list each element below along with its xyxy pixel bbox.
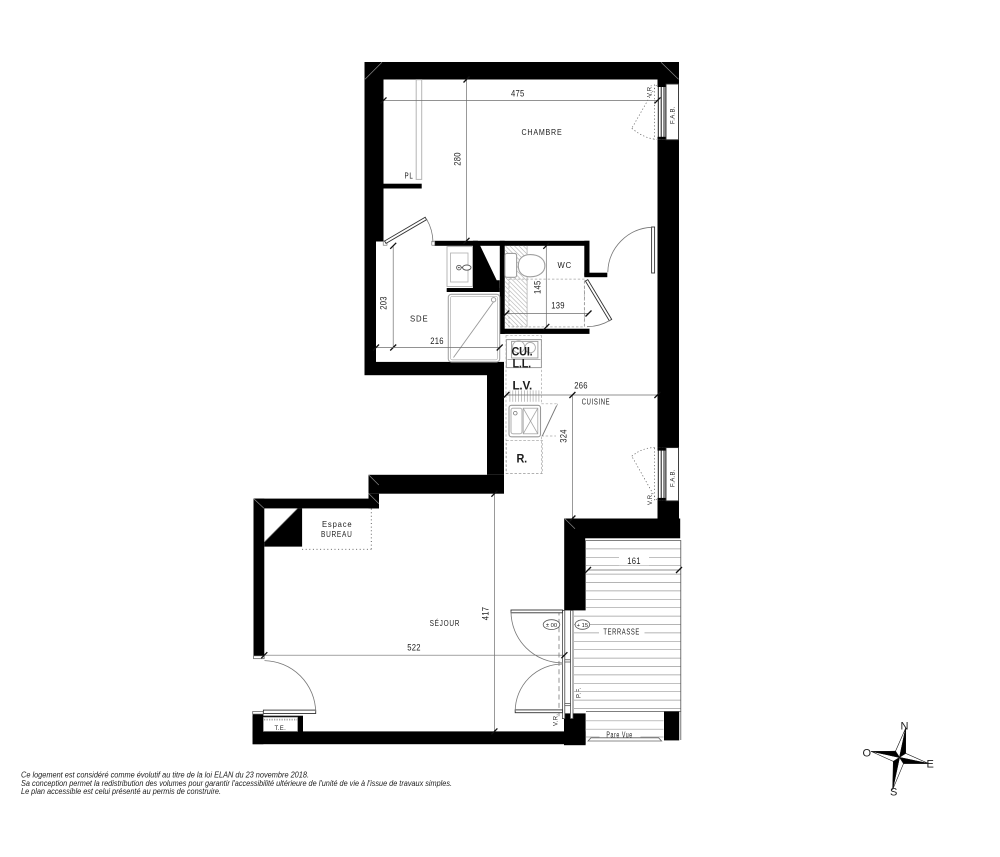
svg-text:WC: WC <box>558 261 573 270</box>
svg-text:F.A.B.: F.A.B. <box>671 469 677 487</box>
svg-text:280: 280 <box>453 152 463 166</box>
svg-text:CUI.: CUI. <box>512 347 533 359</box>
svg-text:E: E <box>927 759 934 771</box>
svg-text:V.R.: V.R. <box>648 493 654 505</box>
svg-text:P.F.: P.F. <box>577 687 583 698</box>
svg-text:PL: PL <box>405 172 414 181</box>
svg-text:417: 417 <box>480 607 490 621</box>
svg-text:S: S <box>890 787 897 799</box>
svg-text:L.L.: L.L. <box>513 358 532 370</box>
svg-text:216: 216 <box>430 336 444 346</box>
svg-text:Le plan accessible est celui p: Le plan accessible est celui présenté au… <box>21 787 221 796</box>
svg-text:145: 145 <box>533 281 543 295</box>
svg-text:522: 522 <box>407 643 421 653</box>
svg-text:SDE: SDE <box>410 315 429 324</box>
svg-text:V.R.: V.R. <box>554 714 560 726</box>
svg-text:TERRASSE: TERRASSE <box>603 628 640 637</box>
svg-text:CHAMBRE: CHAMBRE <box>522 128 563 137</box>
svg-text:BUREAU: BUREAU <box>321 530 353 539</box>
svg-text:V.R.: V.R. <box>648 85 654 97</box>
svg-text:± 00: ± 00 <box>546 623 557 629</box>
svg-text:139: 139 <box>551 301 565 311</box>
svg-text:O: O <box>863 748 872 760</box>
svg-text:Espace: Espace <box>322 520 353 529</box>
svg-text:R.: R. <box>517 454 528 466</box>
svg-text:SÉJOUR: SÉJOUR <box>430 618 461 628</box>
svg-text:F.A.B.: F.A.B. <box>671 106 677 124</box>
svg-text:T.E.: T.E. <box>275 726 287 732</box>
svg-text:+ 15: + 15 <box>577 623 588 629</box>
svg-text:Pare Vue: Pare Vue <box>606 730 632 739</box>
svg-text:203: 203 <box>379 296 389 310</box>
svg-text:266: 266 <box>574 381 588 391</box>
svg-text:N: N <box>901 721 909 733</box>
svg-text:CUISINE: CUISINE <box>582 398 611 407</box>
svg-text:324: 324 <box>559 429 569 443</box>
svg-text:475: 475 <box>511 89 525 99</box>
svg-text:161: 161 <box>627 556 641 566</box>
